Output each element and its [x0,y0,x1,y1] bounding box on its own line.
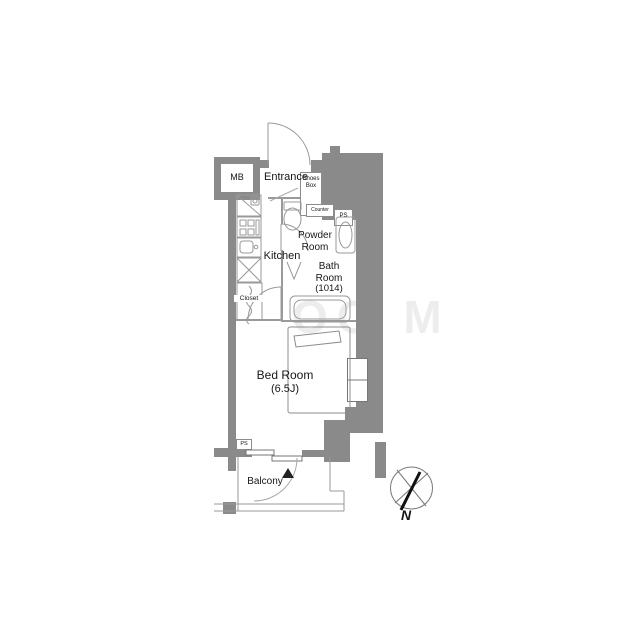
ps-upper-label: PS [334,213,353,220]
bed-room-size-label: (6.5J) [252,383,318,396]
floorplan-linework [0,0,640,640]
powder-room-label-line1: Powder [288,230,342,242]
bedroom-door-arc [248,287,281,320]
stove [237,217,261,237]
bath-folding-door [287,262,301,279]
closet-box [237,283,262,324]
compass-north-label: N [392,507,420,523]
balcony-label: Balcony [233,476,297,488]
shoes-box-label-line2: Box [300,183,322,190]
compass [391,467,433,510]
shoes-box-label: Shoes Box [300,176,322,190]
kitchen-label: Kitchen [260,250,304,263]
closet-label: Closet [234,295,264,302]
mb-label: MB [221,172,253,182]
refrigerator-space [237,258,261,282]
sliding-door [246,450,302,461]
kitchen-sink [237,238,261,257]
entrance-step-line [270,188,298,201]
bath-room-label-line1: Bath [302,261,356,273]
bath-room-size-label: (1014) [302,284,356,295]
counter-label: Counter [306,208,334,214]
shoes-box-label-line1: Shoes [300,176,322,183]
bed-room-label: Bed Room (6.5J) [252,369,318,395]
ps-lower-label: PS [236,441,252,447]
bath-room-label: Bath Room (1014) [302,261,356,295]
toilet [284,202,301,230]
compass-needle [401,472,420,510]
entrance-door-arc [268,123,310,165]
floor-plan-image: OO M [0,0,640,640]
bathtub [290,296,350,322]
washer-space [237,195,261,216]
bed-room-label-line1: Bed Room [252,369,318,383]
